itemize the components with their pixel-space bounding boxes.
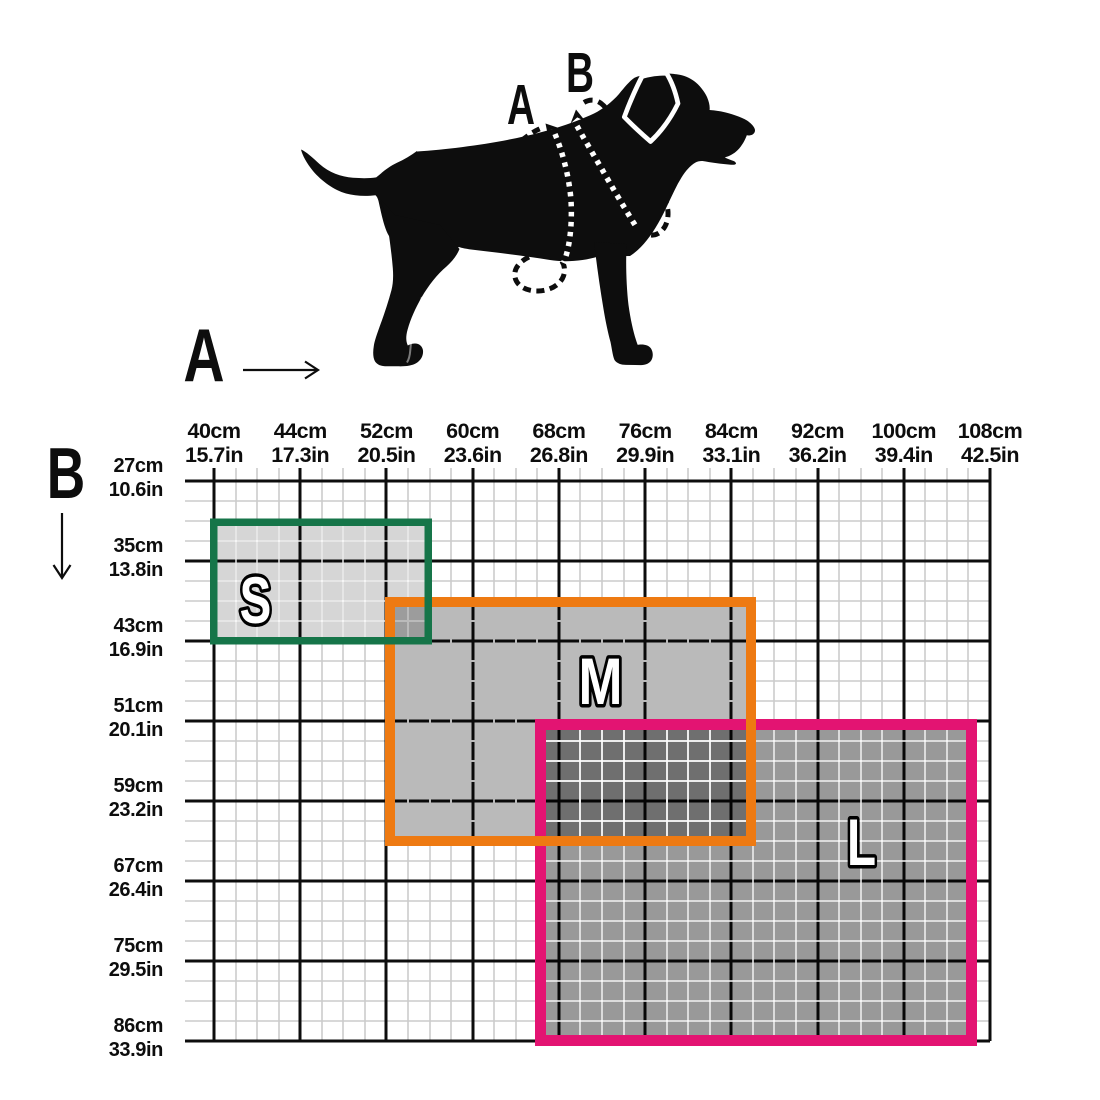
svg-text:33.1in: 33.1in: [702, 443, 760, 467]
svg-text:29.5in: 29.5in: [109, 959, 163, 981]
svg-text:10.6in: 10.6in: [109, 479, 163, 501]
svg-text:35cm: 35cm: [113, 535, 163, 557]
svg-text:27cm: 27cm: [113, 455, 163, 477]
svg-text:26.8in: 26.8in: [530, 443, 588, 467]
svg-text:76cm: 76cm: [619, 419, 672, 443]
svg-text:33.9in: 33.9in: [109, 1039, 163, 1061]
svg-text:44cm: 44cm: [274, 419, 327, 443]
svg-text:108cm: 108cm: [958, 419, 1022, 443]
svg-text:36.2in: 36.2in: [789, 443, 847, 467]
svg-text:60cm: 60cm: [446, 419, 499, 443]
svg-text:23.2in: 23.2in: [109, 799, 163, 821]
svg-text:75cm: 75cm: [113, 935, 163, 957]
svg-text:29.9in: 29.9in: [616, 443, 674, 467]
svg-text:42.5in: 42.5in: [961, 443, 1019, 467]
svg-text:43cm: 43cm: [113, 615, 163, 637]
svg-text:L: L: [847, 806, 876, 879]
svg-text:15.7in: 15.7in: [185, 443, 243, 467]
svg-text:13.8in: 13.8in: [109, 559, 163, 581]
svg-text:B: B: [566, 42, 594, 105]
svg-text:51cm: 51cm: [113, 695, 163, 717]
svg-text:26.4in: 26.4in: [109, 879, 163, 901]
svg-text:40cm: 40cm: [188, 419, 241, 443]
svg-text:20.5in: 20.5in: [357, 443, 415, 467]
svg-text:17.3in: 17.3in: [271, 443, 329, 467]
svg-text:M: M: [579, 644, 623, 718]
svg-text:20.1in: 20.1in: [109, 719, 163, 741]
svg-text:84cm: 84cm: [705, 419, 758, 443]
svg-text:39.4in: 39.4in: [875, 443, 933, 467]
svg-text:92cm: 92cm: [791, 419, 844, 443]
svg-text:86cm: 86cm: [113, 1015, 163, 1037]
svg-text:67cm: 67cm: [113, 855, 163, 877]
svg-text:16.9in: 16.9in: [109, 639, 163, 661]
svg-text:23.6in: 23.6in: [444, 443, 502, 467]
svg-text:52cm: 52cm: [360, 419, 413, 443]
svg-text:B: B: [47, 434, 85, 514]
svg-text:A: A: [183, 315, 224, 398]
svg-text:59cm: 59cm: [113, 775, 163, 797]
svg-text:S: S: [240, 564, 272, 637]
svg-text:68cm: 68cm: [532, 419, 585, 443]
svg-text:100cm: 100cm: [872, 419, 936, 443]
svg-text:A: A: [507, 74, 535, 137]
